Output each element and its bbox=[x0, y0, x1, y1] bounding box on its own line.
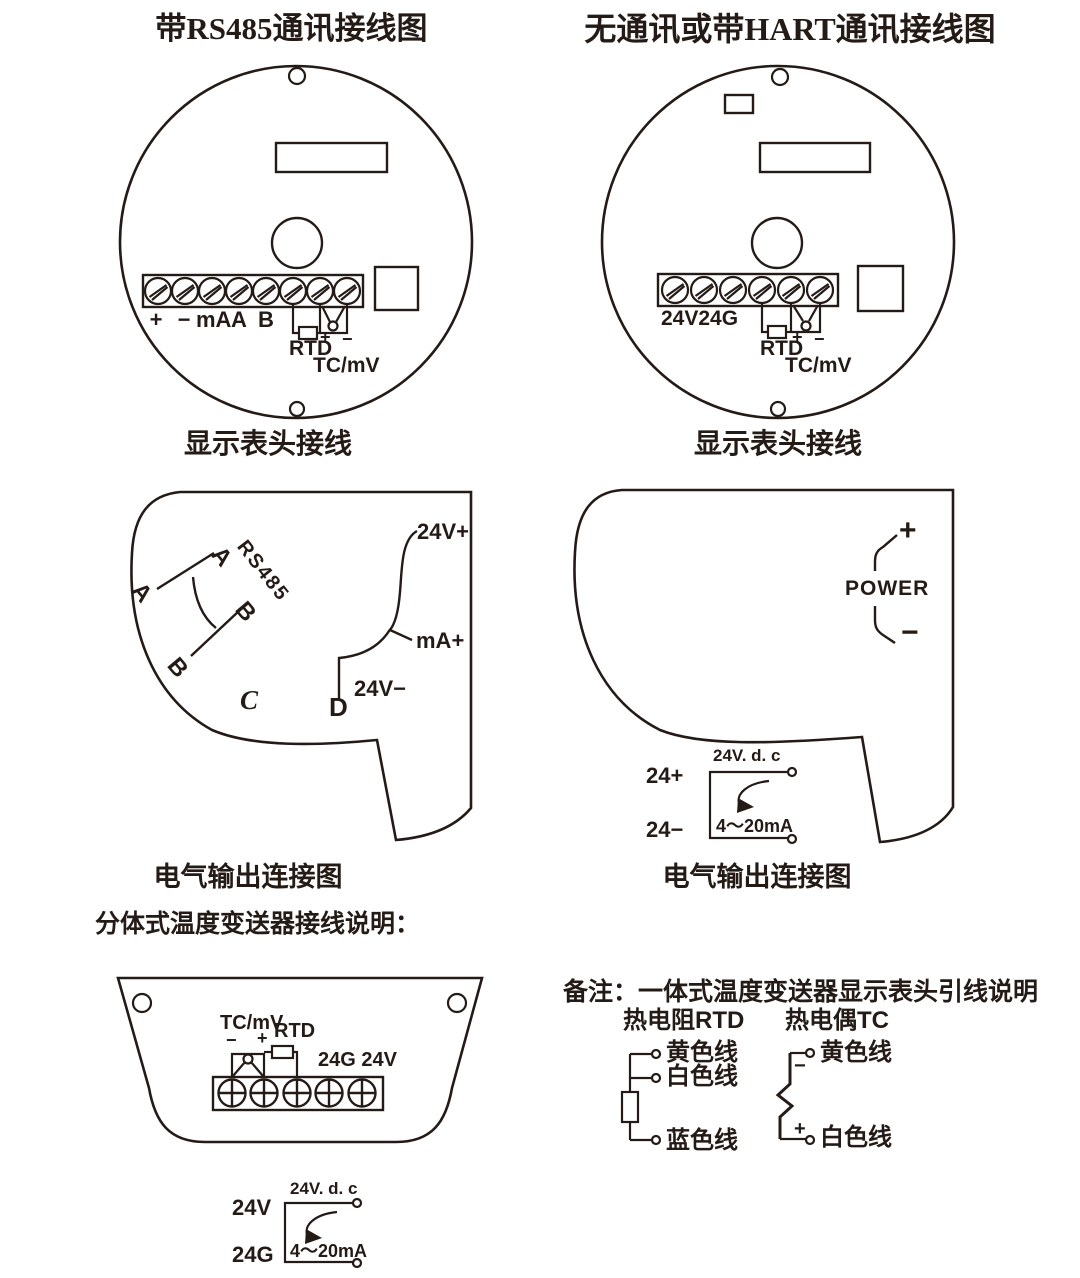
tc-note-title: 热电偶TC bbox=[785, 1008, 889, 1034]
terminal-label-minus: − bbox=[172, 308, 196, 332]
hart-output-cover bbox=[574, 490, 953, 842]
v24-plus-label: 24V+ bbox=[417, 520, 469, 544]
tc-yellow-wire-label: 黄色线 bbox=[820, 1040, 892, 1066]
rtd-label: RTD bbox=[274, 1020, 315, 1042]
v24-minus-label: 24V− bbox=[354, 677, 406, 701]
power-terminals-label: 24G 24V bbox=[318, 1049, 397, 1071]
supply-voltage-label: 24V. d. c bbox=[713, 747, 780, 766]
ma-plus-label: mA+ bbox=[416, 629, 464, 653]
terminal-label-ma: mA bbox=[196, 308, 228, 332]
power-minus-label: − bbox=[901, 616, 919, 649]
tc-minus-label: − bbox=[342, 330, 353, 350]
split-section-heading: 分体式温度变送器接线说明： bbox=[95, 911, 420, 939]
tc-minus-label: − bbox=[226, 1031, 237, 1051]
wiring-diagram-page: 带RS485通讯接线图 无通讯或带HART通讯接线图 显示表头接线 显示表头接线… bbox=[0, 0, 1080, 1278]
pin-d-label: D bbox=[329, 693, 348, 722]
supply-voltage-label: 24V. d. c bbox=[290, 1180, 357, 1199]
tc-mv-label: TC/mV bbox=[313, 354, 380, 377]
current-range-label: 4～20mA bbox=[716, 817, 793, 837]
tc-plus-label: + bbox=[257, 1029, 268, 1049]
rs485-output-caption: 电气输出连接图 bbox=[153, 863, 343, 893]
supply-neg-label: 24− bbox=[646, 818, 683, 842]
hart-head-housing bbox=[602, 66, 954, 418]
hart-wiring-title: 无通讯或带HART通讯接线图 bbox=[551, 12, 1029, 47]
hart-head-sensor-wiring bbox=[762, 303, 820, 338]
rtd-white-wire-label: 白色线 bbox=[666, 1064, 738, 1090]
tc-mv-label: TC/mV bbox=[785, 354, 852, 377]
hart-head-caption: 显示表头接线 bbox=[688, 429, 868, 460]
terminal-label-b: B bbox=[255, 308, 277, 332]
tc-white-wire-label: 白色线 bbox=[820, 1125, 892, 1151]
rtd-blue-wire-label: 蓝色线 bbox=[666, 1128, 738, 1154]
power-terminals-label: 24V24G bbox=[661, 307, 738, 330]
supply-pos-label: 24+ bbox=[646, 764, 683, 788]
tc-minus-label: − bbox=[814, 330, 825, 350]
terminal-label-plus: + bbox=[144, 308, 168, 332]
rs485-head-terminals bbox=[145, 278, 360, 304]
tc-minus-label: − bbox=[794, 1055, 806, 1077]
tc-plus-label: + bbox=[794, 1118, 806, 1140]
rtd-lead-diagram bbox=[622, 1050, 660, 1144]
terminal-label-a: A bbox=[228, 308, 250, 332]
power-plus-label: + bbox=[899, 514, 917, 547]
split-transmitter-wiring bbox=[232, 1046, 297, 1077]
supply-neg-label: 24G bbox=[232, 1243, 274, 1267]
rs485-head-caption: 显示表头接线 bbox=[178, 429, 358, 460]
tc-plus-label: + bbox=[320, 328, 331, 348]
power-label: POWER bbox=[845, 577, 929, 600]
split-transmitter-terminals bbox=[219, 1080, 376, 1107]
hart-head-terminals bbox=[662, 277, 833, 303]
supply-pos-label: 24V bbox=[232, 1196, 271, 1220]
split-transmitter-housing bbox=[118, 978, 482, 1142]
rs485-output-wires bbox=[157, 531, 417, 699]
rs485-head-housing bbox=[120, 66, 472, 418]
hart-output-caption: 电气输出连接图 bbox=[662, 863, 852, 893]
rtd-note-title: 热电阻RTD bbox=[623, 1008, 744, 1034]
note-text: 备注：一体式温度变送器显示表头引线说明 bbox=[563, 979, 1038, 1007]
current-range-label: 4～20mA bbox=[290, 1242, 367, 1262]
rs485-wiring-title: 带RS485通讯接线图 bbox=[139, 12, 444, 46]
pin-c-label: C bbox=[240, 686, 258, 716]
tc-plus-label: + bbox=[792, 328, 803, 348]
